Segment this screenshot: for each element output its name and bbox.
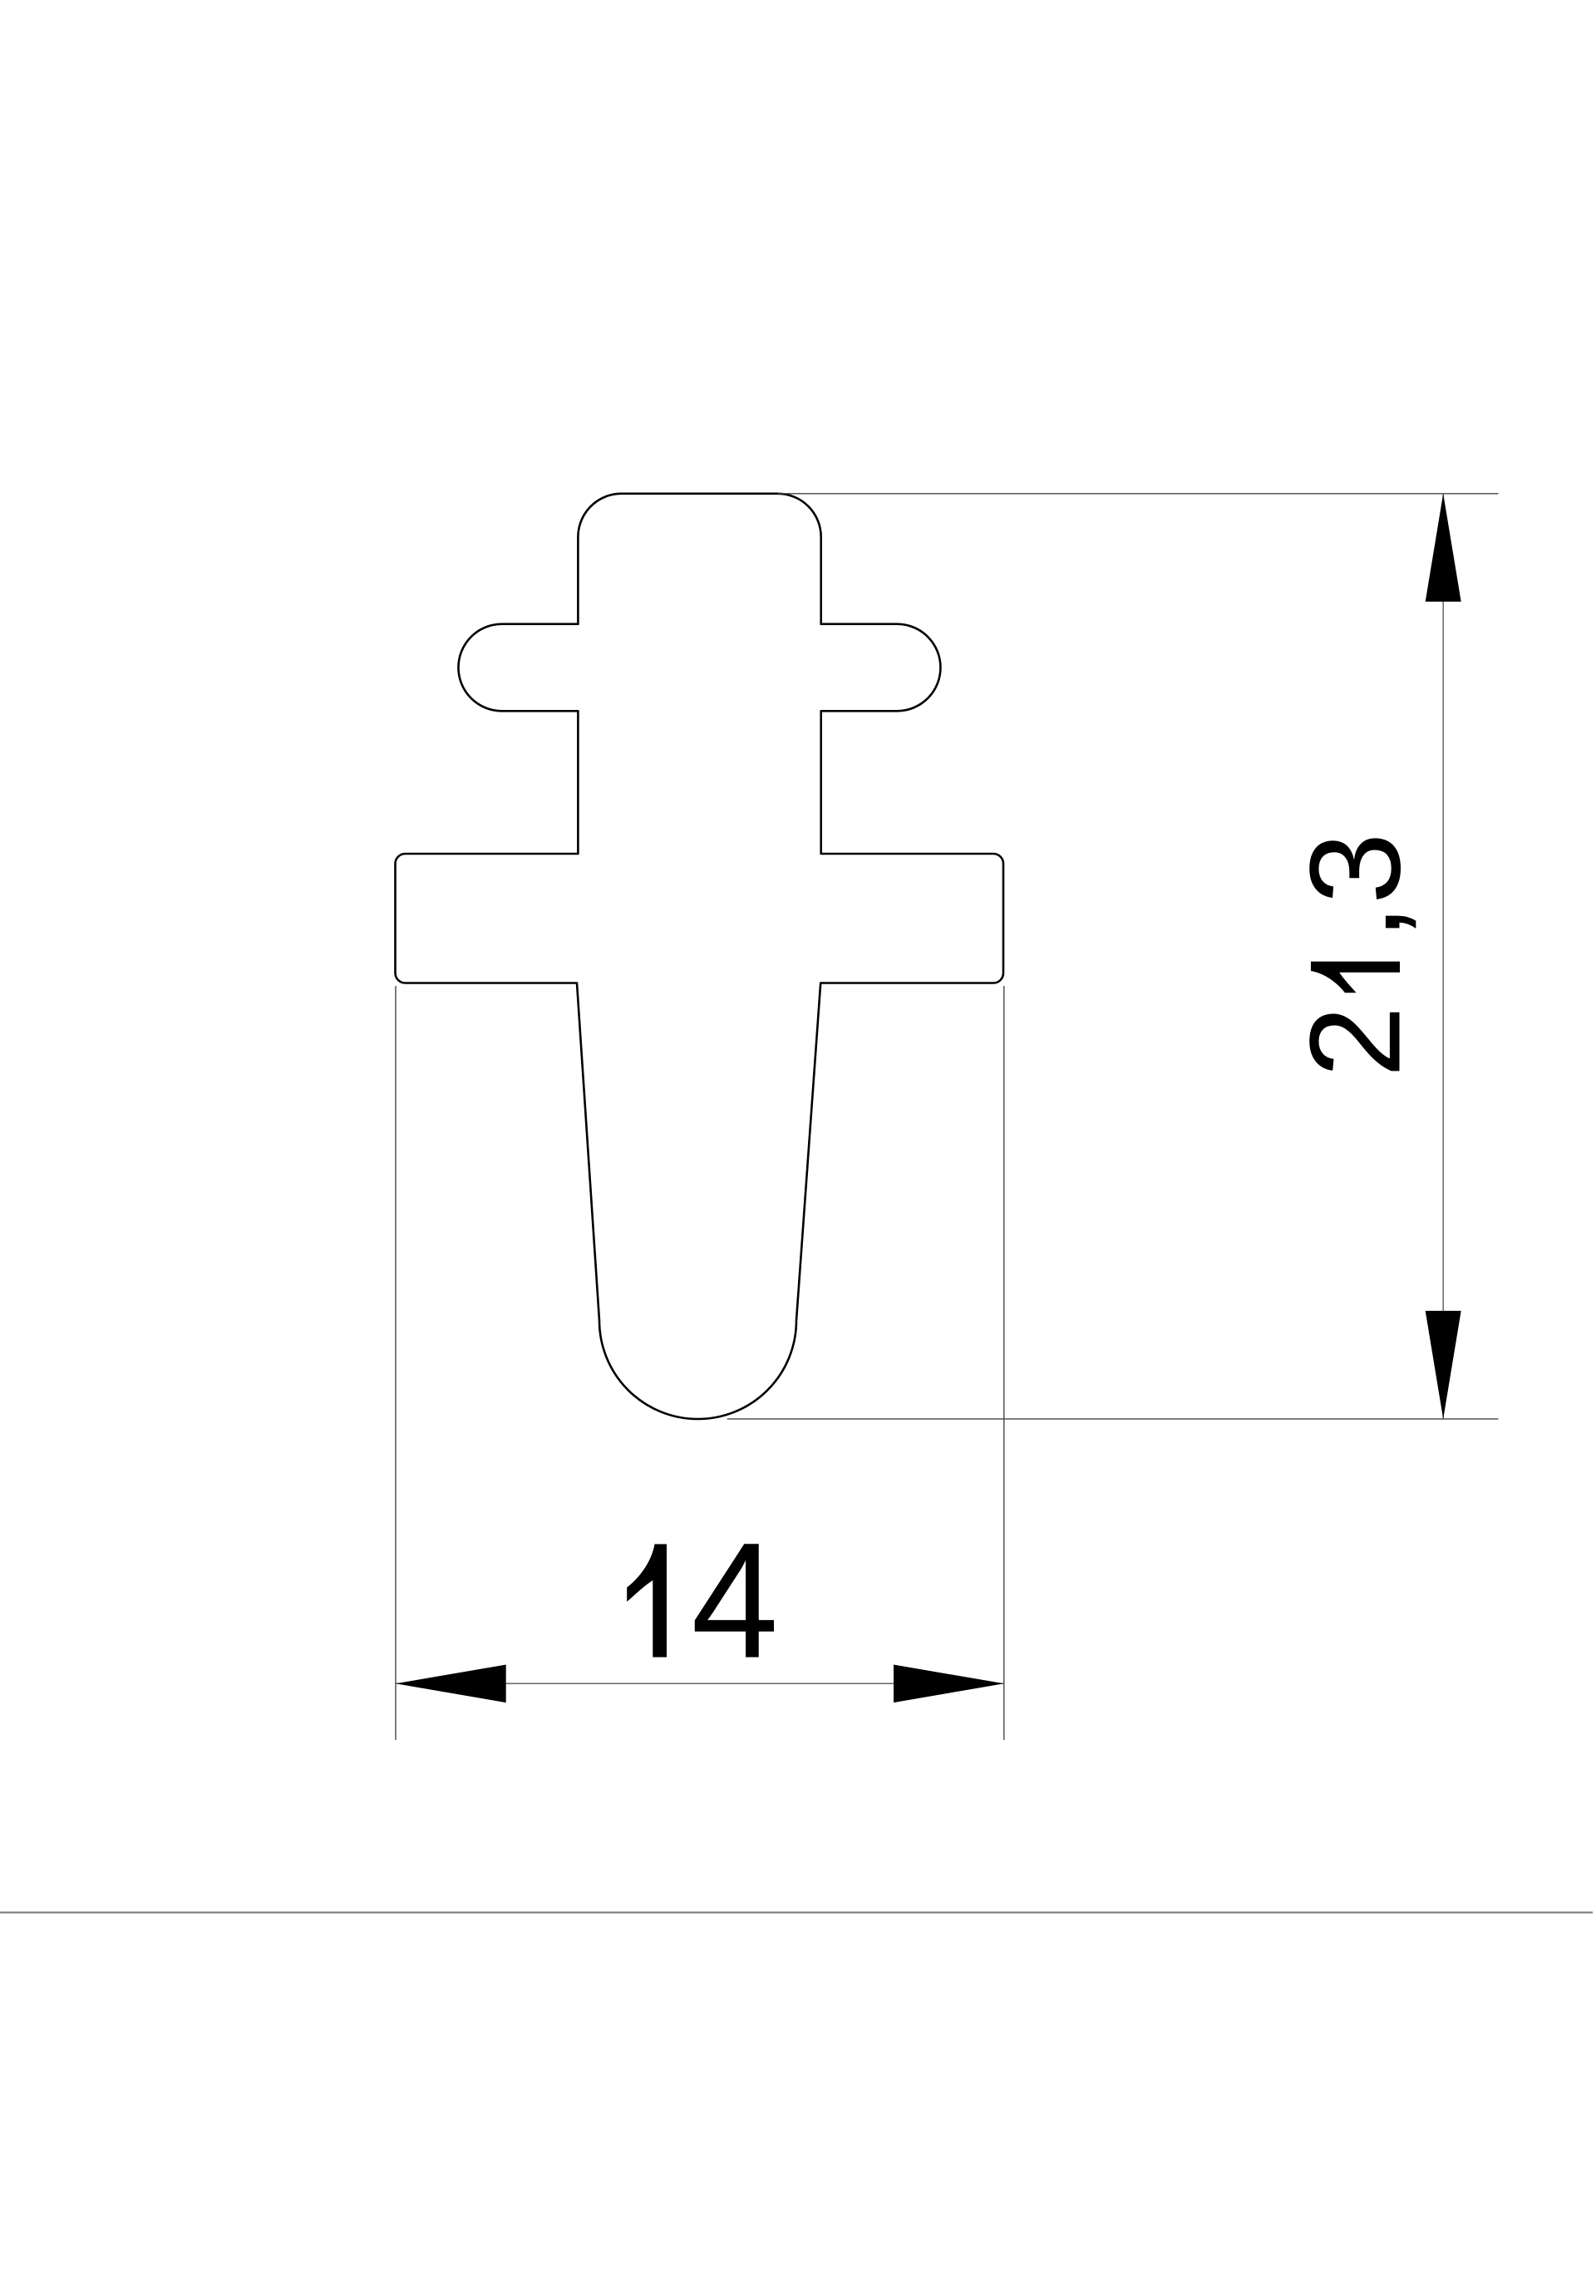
svg-text:2: 2 xyxy=(1283,1006,1427,1077)
svg-text:,3: ,3 xyxy=(1283,833,1427,940)
svg-text:4: 4 xyxy=(691,1509,778,1692)
